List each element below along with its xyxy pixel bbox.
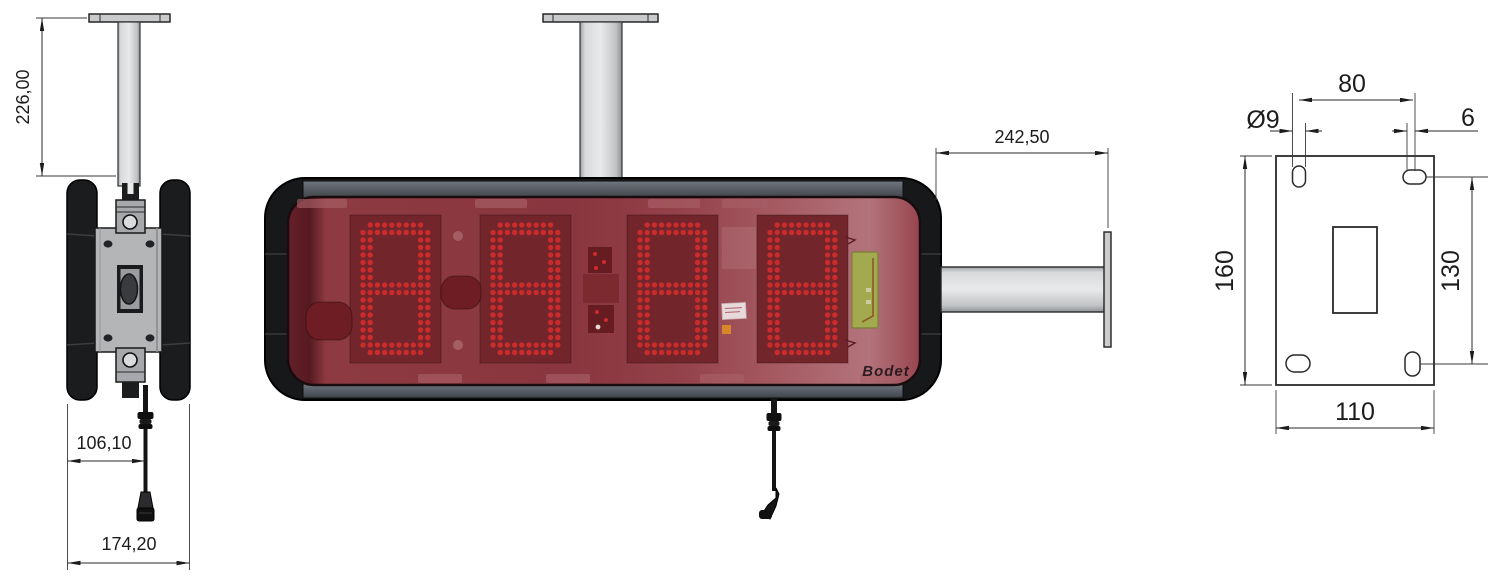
inner-pcb: [722, 227, 756, 269]
control-pcb: [852, 252, 878, 328]
side-mounting-pole: [118, 22, 140, 186]
window-screw-hole: [453, 231, 463, 241]
front-cable-connector: [759, 510, 772, 519]
digit-panel: [627, 215, 718, 363]
dimension-label: 226,00: [13, 69, 33, 124]
wall-arm-flange: [1104, 232, 1111, 347]
digit-panel: [480, 215, 571, 363]
plate-hole-top-right: [1403, 170, 1426, 184]
side-bottom-fork: [122, 382, 139, 398]
plate-hole-top-left: [1293, 166, 1306, 187]
dimension-label: 80: [1338, 70, 1366, 98]
warning-label: [722, 302, 747, 319]
brand-logo: Bodet: [862, 363, 910, 380]
dim-pole-height: 226,00: [13, 18, 116, 176]
sensor-blob: [306, 302, 352, 340]
plate-hole-bottom-right: [1405, 352, 1420, 376]
wall-arm: [941, 267, 1105, 312]
dim-slot-width: 6: [1392, 104, 1478, 132]
side-rear-cap: [160, 180, 190, 400]
side-top-bracket-hole: [123, 215, 137, 229]
front-ceiling-flange: [543, 14, 658, 22]
dimension-label: 174,20: [101, 534, 156, 554]
dimension-label: 130: [1437, 250, 1465, 292]
dim-hole-diameter: Ø9: [1246, 106, 1322, 134]
side-speaker-oval: [121, 274, 138, 304]
technical-drawing: 226,00 106,10 174,20: [0, 0, 1501, 588]
side-view: 226,00 106,10 174,20: [13, 14, 190, 570]
orange-sticker: [722, 325, 731, 334]
dimension-label: 160: [1211, 250, 1239, 292]
side-front-cap: [67, 180, 97, 400]
dim-overall-depth: 174,20: [68, 404, 190, 570]
plate-hole-bottom-left: [1286, 355, 1310, 372]
sensor-blob: [441, 276, 481, 309]
dim-plate-width: 110: [1276, 390, 1434, 434]
screw: [146, 334, 155, 341]
front-cable: [759, 399, 782, 519]
digit-panel: [350, 215, 441, 363]
screw: [104, 334, 113, 341]
front-mounting-pole: [580, 22, 622, 180]
side-cable-connector: [137, 508, 154, 521]
window-screw-hole: [453, 340, 463, 350]
dimension-label: Ø9: [1246, 106, 1279, 134]
dimension-label: 106,10: [76, 433, 131, 453]
dimension-label: 6: [1461, 104, 1475, 132]
screw: [104, 240, 113, 247]
dim-hole-spacing-horizontal: 80: [1299, 70, 1413, 100]
mounting-plate-view: 80 Ø9 6 160 130: [1211, 70, 1488, 434]
side-ceiling-flange: [89, 14, 170, 22]
drawing-canvas: 226,00 106,10 174,20: [0, 0, 1501, 588]
side-cable: [137, 385, 154, 521]
dim-plate-height: 160: [1211, 156, 1272, 385]
dimension-label: 110: [1335, 398, 1375, 426]
front-view: Bodet 242,50: [265, 14, 1111, 519]
plate-center-cutout: [1333, 227, 1377, 313]
dim-arm-length: 242,50: [936, 127, 1108, 228]
side-bottom-bracket-hole: [123, 353, 137, 367]
frame-top-strip: [303, 181, 903, 198]
digit-panel: [757, 215, 848, 363]
screw: [146, 240, 155, 247]
dimension-label: 242,50: [994, 127, 1049, 147]
